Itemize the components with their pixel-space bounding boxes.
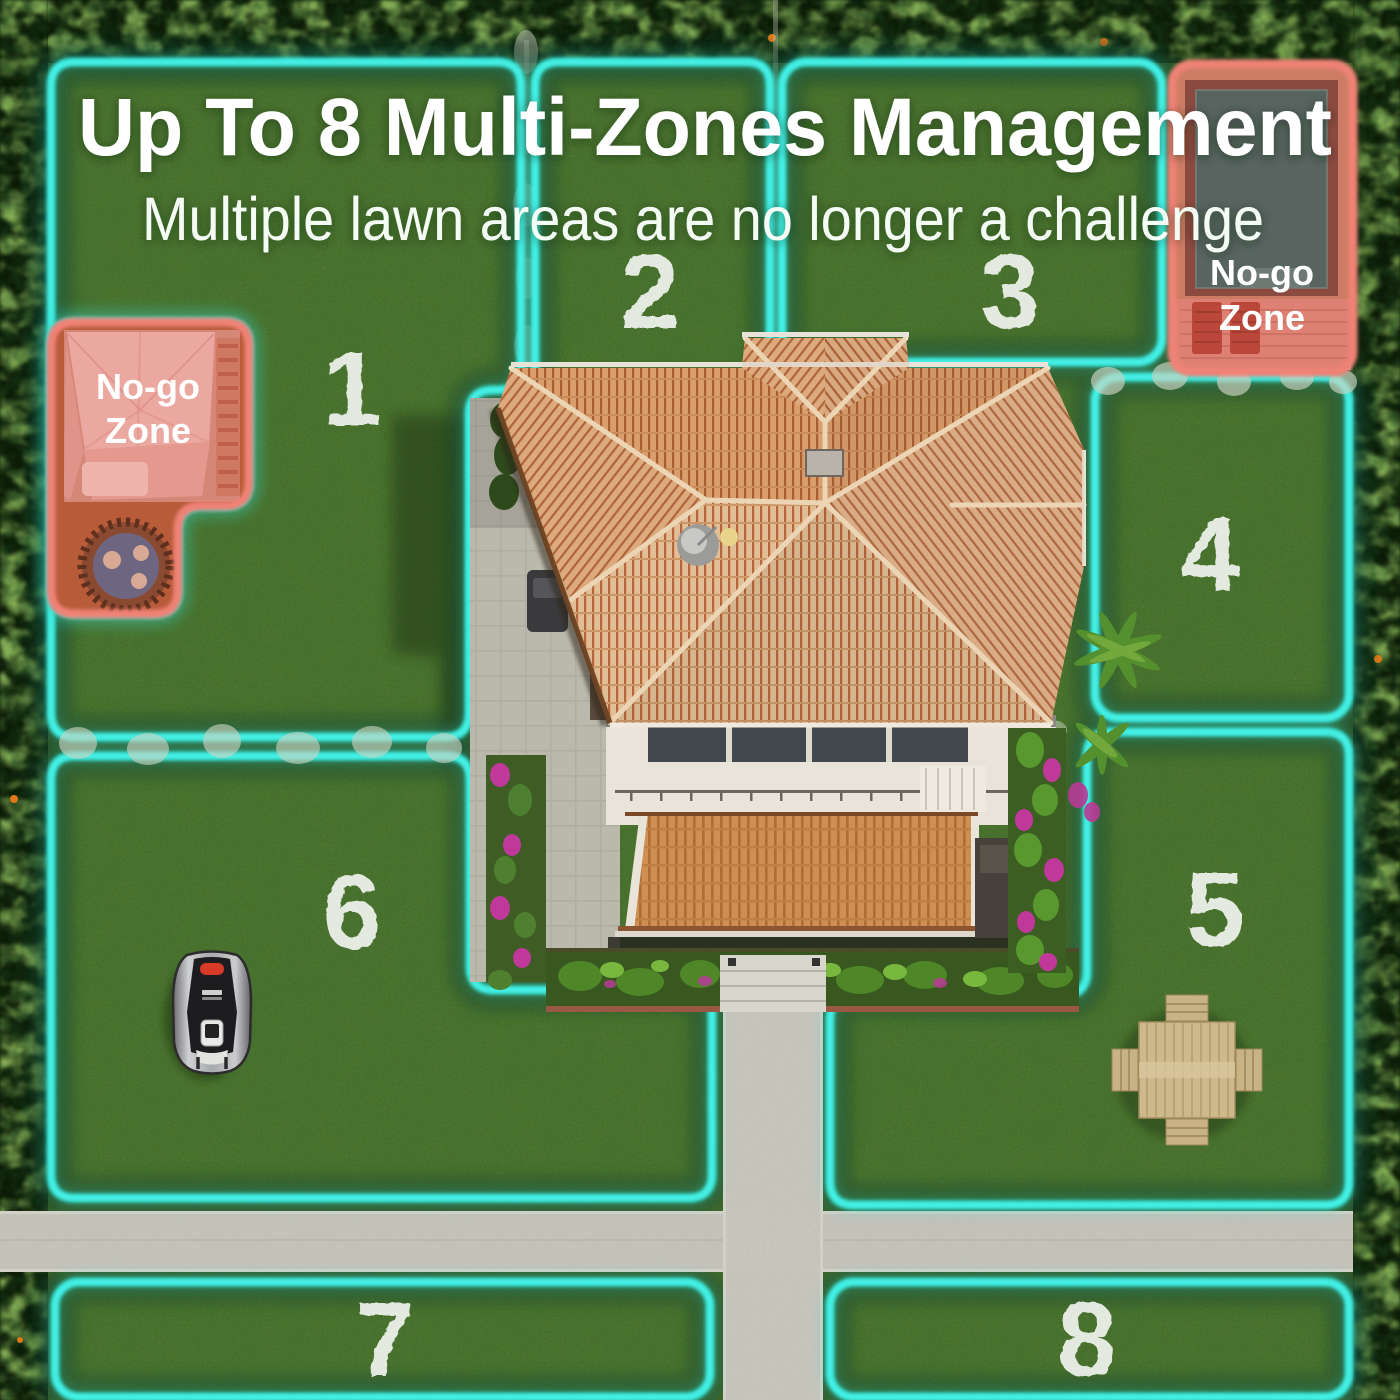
svg-text:Up To 8 Multi-Zones Management: Up To 8 Multi-Zones Management (78, 82, 1332, 173)
svg-text:No-go: No-go (1210, 252, 1314, 293)
svg-text:4: 4 (1181, 496, 1240, 614)
svg-text:8: 8 (1058, 1281, 1117, 1399)
svg-text:5: 5 (1186, 851, 1245, 969)
svg-text:7: 7 (356, 1281, 415, 1399)
svg-text:No-go: No-go (96, 366, 200, 407)
svg-text:1: 1 (323, 330, 382, 448)
svg-text:3: 3 (981, 233, 1040, 351)
svg-text:Multiple lawn areas are no lon: Multiple lawn areas are no longer a chal… (142, 185, 1264, 253)
svg-text:Zone: Zone (105, 410, 191, 451)
svg-text:2: 2 (621, 233, 680, 351)
svg-text:Zone: Zone (1219, 297, 1305, 338)
svg-text:6: 6 (323, 853, 382, 971)
